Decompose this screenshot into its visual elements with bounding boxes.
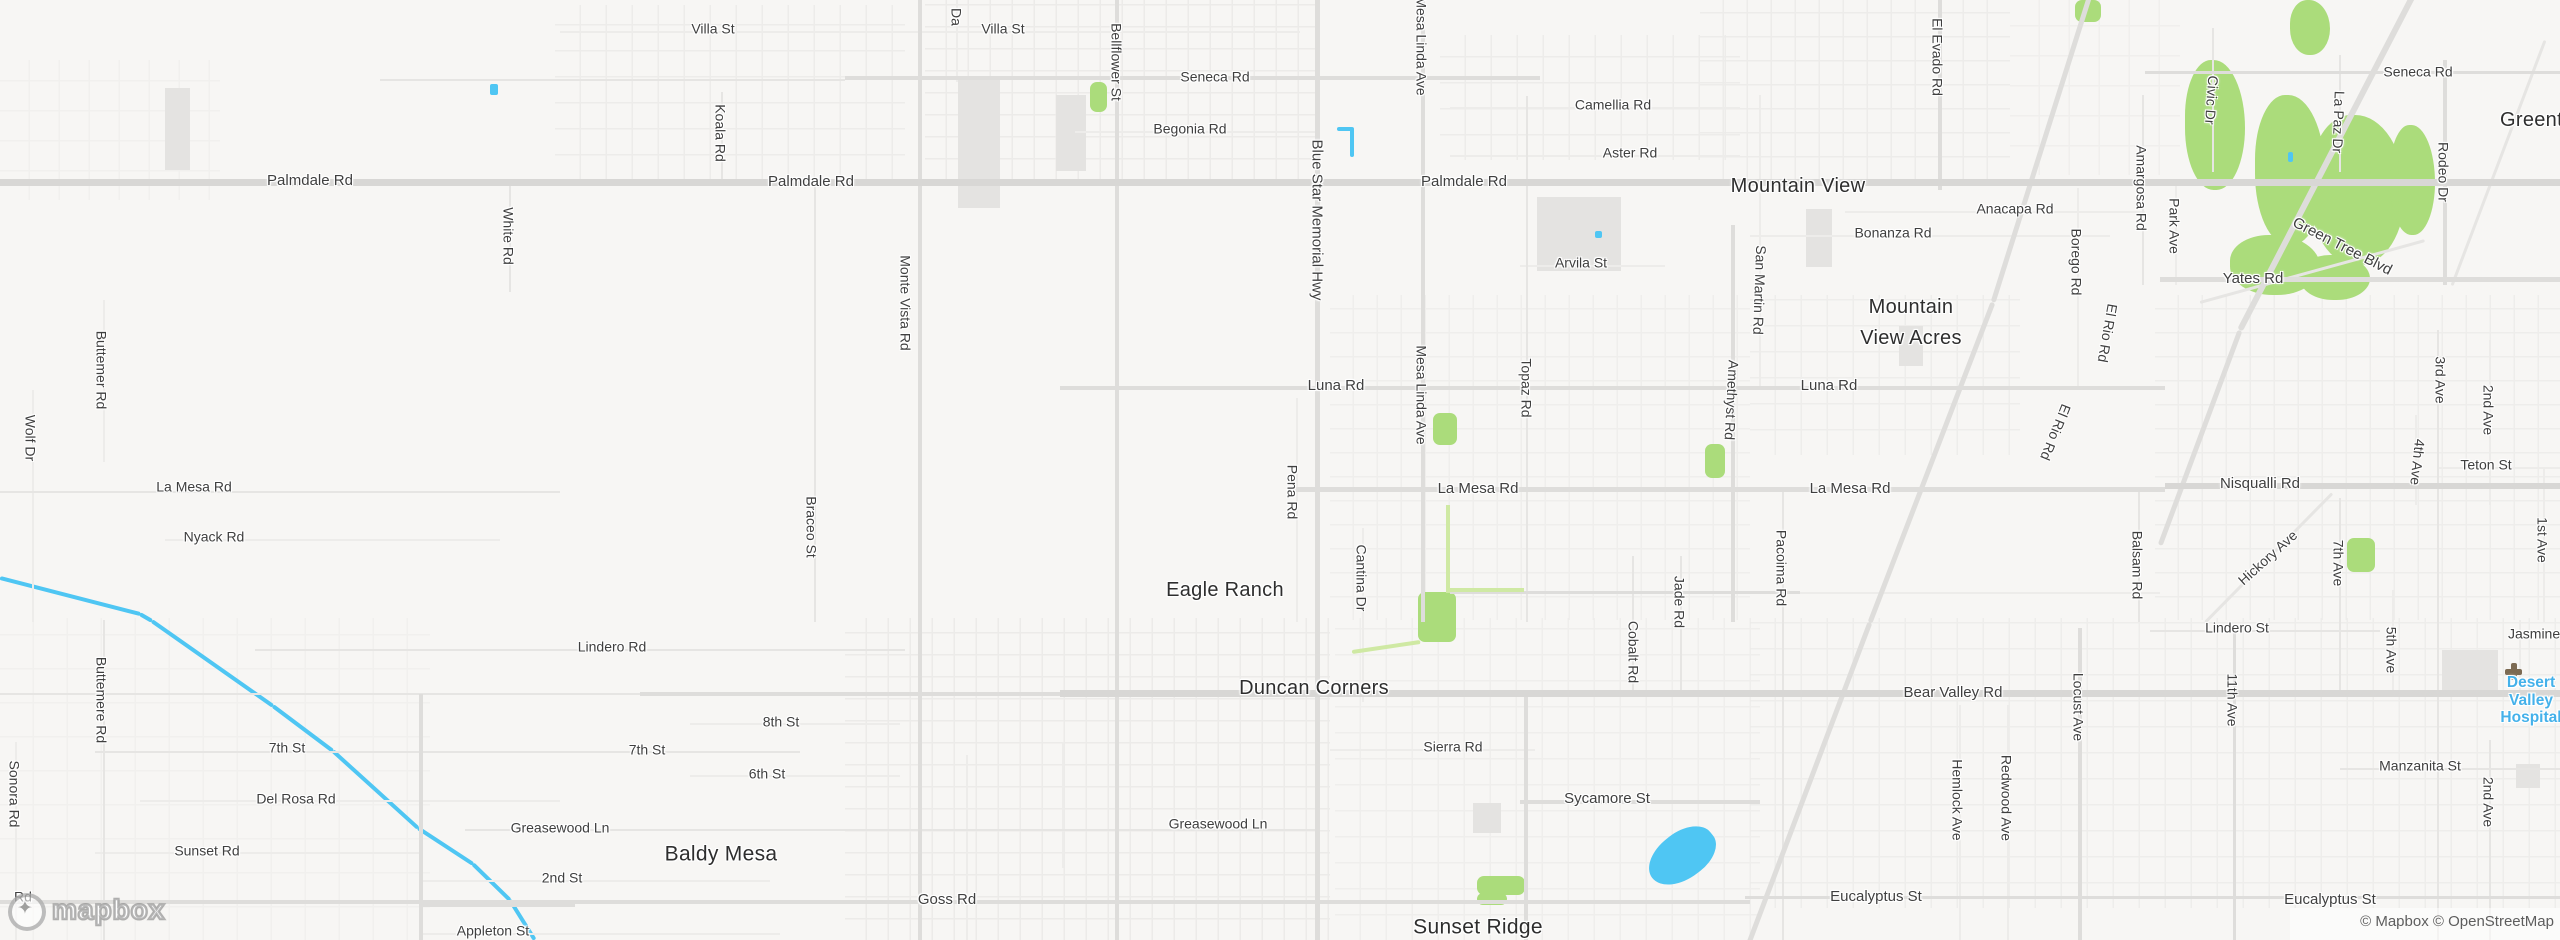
road-label: 2nd Ave <box>2480 777 2495 827</box>
park-area <box>1705 444 1725 478</box>
road-label: Monte Vista Rd <box>897 255 912 350</box>
place-label: Greentree <box>2500 109 2560 131</box>
road-label: Palmdale Rd <box>1421 174 1507 191</box>
road-label: San Martin Rd <box>1750 245 1769 335</box>
place-label: Baldy Mesa <box>665 842 778 865</box>
aqueduct-waterway <box>472 863 511 901</box>
road-label: Pacoima Rd <box>1773 530 1788 606</box>
road-label: Mesa Linda Ave <box>1413 0 1428 96</box>
attribution-text: © Mapbox © OpenStreetMap <box>2360 913 2554 930</box>
road-label: Braceo St <box>803 496 818 557</box>
road-label: 5th Ave <box>2383 627 2398 673</box>
road <box>560 31 1300 33</box>
road-label: Greasewood Ln <box>511 820 610 835</box>
urban-block <box>958 78 1000 208</box>
water-body <box>490 84 498 95</box>
road <box>2451 39 2547 285</box>
road-label: Rodeo Dr <box>2435 142 2450 202</box>
road <box>2160 277 2560 282</box>
road-label: Jasmine <box>2508 626 2560 641</box>
road-label: Luna Rd <box>1801 378 1858 395</box>
road <box>95 852 420 854</box>
road <box>690 775 900 777</box>
road-label: 6th St <box>749 766 786 781</box>
park-area <box>1090 82 1107 112</box>
place-label: Eagle Ranch <box>1166 579 1284 601</box>
greenway-path <box>1446 505 1450 593</box>
road-label: La Mesa Rd <box>156 479 231 494</box>
road-label: Sycamore St <box>1564 791 1650 808</box>
road-label: Bear Valley Rd <box>1904 685 2003 702</box>
urban-block <box>1473 803 1501 833</box>
road-label: La Paz Dr <box>2329 91 2347 154</box>
road <box>0 900 1750 904</box>
road <box>1759 95 1761 390</box>
road <box>640 692 1060 696</box>
road <box>918 0 922 940</box>
hospital-label: Hospital <box>2500 709 2560 727</box>
road-label: Park Ave <box>2166 198 2181 254</box>
street-grid-patch <box>1330 295 1750 620</box>
road-label: Sierra Rd <box>1423 739 1482 754</box>
golf-course-area <box>2290 0 2330 55</box>
road-label: Redwood Ave <box>1998 755 2013 841</box>
water-body <box>2288 152 2293 162</box>
aqueduct-waterway <box>0 576 140 615</box>
road <box>2339 498 2342 693</box>
place-label: Duncan Corners <box>1239 677 1389 699</box>
road-label: Topaz Rd <box>1518 358 1533 417</box>
road <box>420 880 770 882</box>
road-label: El Evado Rd <box>1929 18 1944 96</box>
road-label: La Mesa Rd <box>1810 481 1891 498</box>
road-label: Palmdale Rd <box>768 174 854 191</box>
road <box>419 694 423 940</box>
road-label: 8th St <box>763 714 800 729</box>
road-label: Manzanita St <box>2379 758 2461 773</box>
road-label: Yates Rd <box>2223 271 2284 288</box>
road-label: Pena Rd <box>1284 465 1299 519</box>
road-label: 7th Ave <box>2330 540 2345 586</box>
road-label: Civic Dr <box>2202 75 2221 125</box>
road-label: Koala Rd <box>712 104 727 162</box>
urban-block <box>1806 209 1832 267</box>
road <box>0 179 2560 186</box>
urban-block <box>165 88 190 170</box>
road-label: 2nd St <box>542 870 582 885</box>
road-label: Locust Ave <box>2070 673 2085 741</box>
road <box>1450 155 1740 157</box>
map-layers: Villa StVilla StSeneca RdBegonia RdCamel… <box>0 0 2560 940</box>
street-grid-patch <box>2010 0 2180 175</box>
road-label: La Mesa Rd <box>1438 481 1519 498</box>
road-label: Seneca Rd <box>2383 64 2452 79</box>
place-label: Mountain <box>1869 296 1954 318</box>
road-label: Greasewood Ln <box>1169 816 1268 831</box>
road-label: Anacapa Rd <box>1976 201 2053 216</box>
road-label: White Rd <box>500 207 515 265</box>
road-label: Goss Rd <box>918 892 976 909</box>
road-label: Cantina Dr <box>1353 545 1368 612</box>
road-label: Blue Star Memorial Hwy <box>1308 140 1325 301</box>
road <box>95 751 800 754</box>
road-label: Villa St <box>691 21 734 36</box>
road <box>1524 693 1528 940</box>
mapbox-star-icon: ✦ <box>17 897 33 920</box>
road <box>1800 592 2160 594</box>
road-label: Palmdale Rd <box>267 173 353 190</box>
road-label: Del Rosa Rd <box>256 791 335 806</box>
road <box>2145 71 2560 74</box>
place-label: Sunset Ridge <box>1413 915 1543 938</box>
road-label: Hemlock Ave <box>1949 759 1964 840</box>
road-label: 11th Ave <box>2224 673 2239 726</box>
road-label: Sunset Rd <box>174 843 239 858</box>
road-label: Buttemere Rd <box>93 657 108 743</box>
greenway-path <box>1446 588 1524 592</box>
road-label: Borego Rd <box>2068 229 2083 296</box>
road-label: Aster Rd <box>1603 145 1657 160</box>
road-label: Wolf Dr <box>22 415 37 461</box>
street-grid-patch <box>1335 618 1760 940</box>
road-label: Lindero St <box>2205 620 2269 635</box>
road-label: Camellia Rd <box>1575 97 1651 112</box>
road-label: 1st Ave <box>2534 517 2549 563</box>
road-label: 7th St <box>269 740 306 755</box>
road-label: Amethyst Rd <box>1721 360 1741 441</box>
park-area <box>1433 413 1457 445</box>
road-label: Appleton St <box>457 923 529 938</box>
map-canvas[interactable]: Villa StVilla StSeneca RdBegonia RdCamel… <box>0 0 2560 940</box>
road <box>1060 386 2165 390</box>
road-label: Balsam Rd <box>2129 531 2144 599</box>
road-label: Eucalyptus St <box>1830 889 1922 906</box>
road <box>966 755 968 940</box>
road-label: Eucalyptus St <box>2284 892 2376 909</box>
park-area <box>2347 538 2375 572</box>
mapbox-logo[interactable]: ✦ mapbox <box>8 891 228 935</box>
road-label: Buttemer Rd <box>93 331 108 410</box>
street-grid-patch <box>1700 0 2010 180</box>
road-label: Amargosa Rd <box>2133 145 2148 231</box>
road-label: Villa St <box>981 21 1024 36</box>
road-label: Nisqualli Rd <box>2220 476 2300 493</box>
road <box>0 491 560 494</box>
road-label: Nyack Rd <box>184 529 245 544</box>
road-label: Cobalt Rd <box>1625 621 1640 683</box>
water-body <box>1595 231 1602 238</box>
road-label: Arvila St <box>1555 255 1607 270</box>
urban-block <box>1056 95 1086 171</box>
road-label: Jade Rd <box>1671 576 1686 628</box>
road-label: Sonora Rd <box>6 761 21 828</box>
road-label: 2nd Ave <box>2480 385 2495 435</box>
road-label: Mesa Linda Ave <box>1413 345 1428 444</box>
road <box>1062 742 1064 868</box>
water-body <box>1350 127 1354 157</box>
road-label: Teton St <box>2460 457 2511 472</box>
road-label: Bellflower St <box>1108 23 1123 101</box>
road <box>380 79 845 82</box>
mapbox-wordmark: mapbox <box>52 894 165 926</box>
road-label: Luna Rd <box>1308 378 1365 395</box>
road <box>1115 0 1119 940</box>
place-label: View Acres <box>1860 327 1962 349</box>
road-label: Begonia Rd <box>1153 121 1226 136</box>
road <box>140 800 560 802</box>
urban-block <box>2442 650 2498 690</box>
road-label: 7th St <box>629 742 666 757</box>
road-label: Lindero Rd <box>578 639 647 654</box>
road-label: Bonanza Rd <box>1854 225 1931 240</box>
attribution[interactable]: © Mapbox © OpenStreetMap <box>2290 908 2560 940</box>
hospital-label: Desert Valley <box>2507 674 2555 710</box>
road-label: El Rio Rd <box>2094 303 2119 364</box>
place-label: Mountain View <box>1731 175 1866 197</box>
road-label: 3rd Ave <box>2432 356 2447 403</box>
road-label: El Rio Rd <box>2037 402 2073 463</box>
road-label: Seneca Rd <box>1180 69 1249 84</box>
road-label: Da <box>948 8 963 26</box>
road <box>2437 330 2440 940</box>
road <box>421 903 575 907</box>
street-grid-patch <box>1750 295 2020 455</box>
